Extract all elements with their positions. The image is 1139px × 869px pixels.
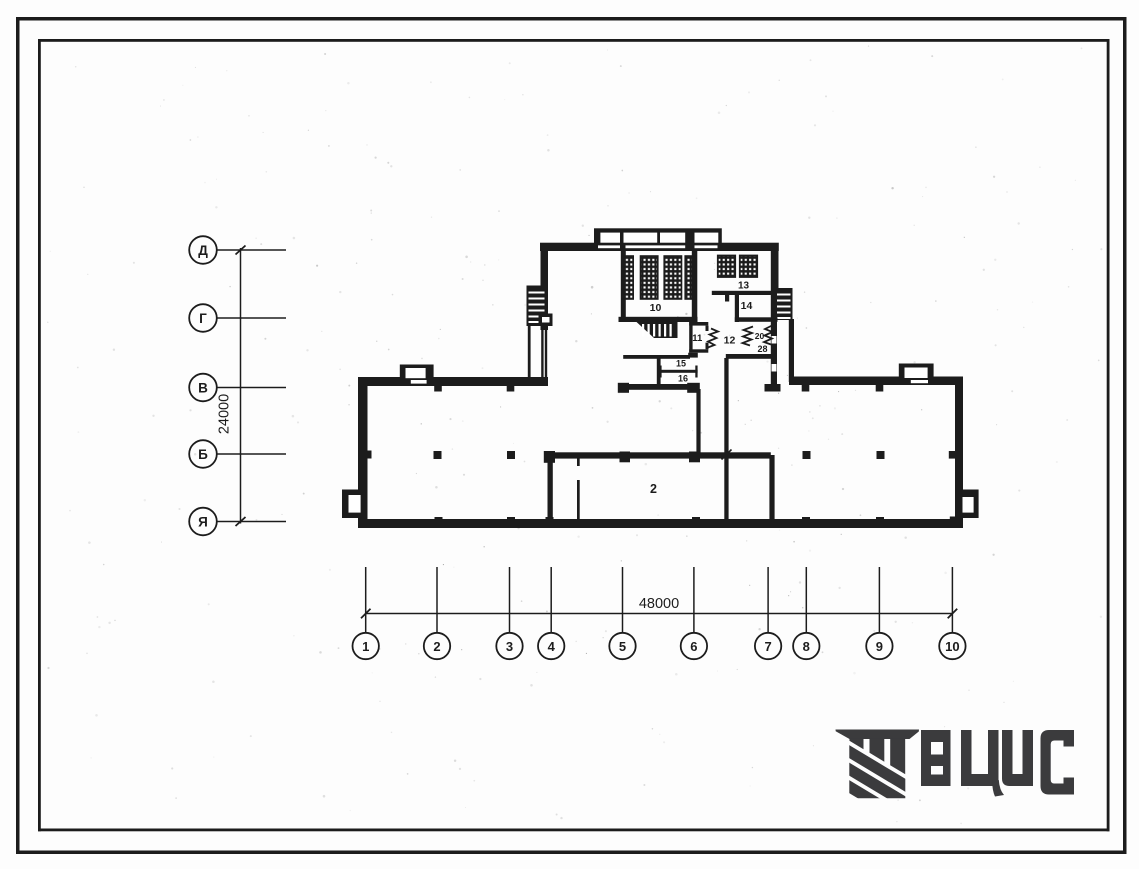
svg-text:2: 2: [433, 639, 440, 654]
svg-text:Г: Г: [199, 311, 207, 326]
svg-text:3: 3: [506, 639, 513, 654]
svg-text:Б: Б: [198, 447, 208, 462]
svg-text:28: 28: [757, 344, 767, 354]
svg-text:1: 1: [362, 639, 369, 654]
svg-text:Я: Я: [198, 515, 208, 530]
svg-text:20: 20: [755, 331, 765, 341]
svg-text:4: 4: [548, 639, 556, 654]
svg-text:8: 8: [803, 639, 810, 654]
svg-text:24000: 24000: [217, 394, 233, 434]
svg-text:Д: Д: [198, 243, 208, 258]
svg-text:5: 5: [619, 639, 626, 654]
svg-text:10: 10: [945, 639, 959, 654]
svg-text:11: 11: [692, 333, 703, 344]
svg-text:6: 6: [690, 639, 697, 654]
svg-text:В: В: [198, 381, 208, 396]
svg-text:48000: 48000: [639, 596, 679, 612]
svg-text:15: 15: [676, 359, 686, 369]
svg-text:16: 16: [678, 374, 688, 384]
svg-text:9: 9: [876, 639, 883, 654]
svg-text:13: 13: [738, 281, 750, 292]
svg-text:7: 7: [764, 639, 771, 654]
svg-text:2: 2: [650, 482, 657, 496]
svg-text:14: 14: [741, 300, 753, 312]
svg-text:10: 10: [650, 302, 662, 314]
svg-text:12: 12: [724, 334, 736, 346]
